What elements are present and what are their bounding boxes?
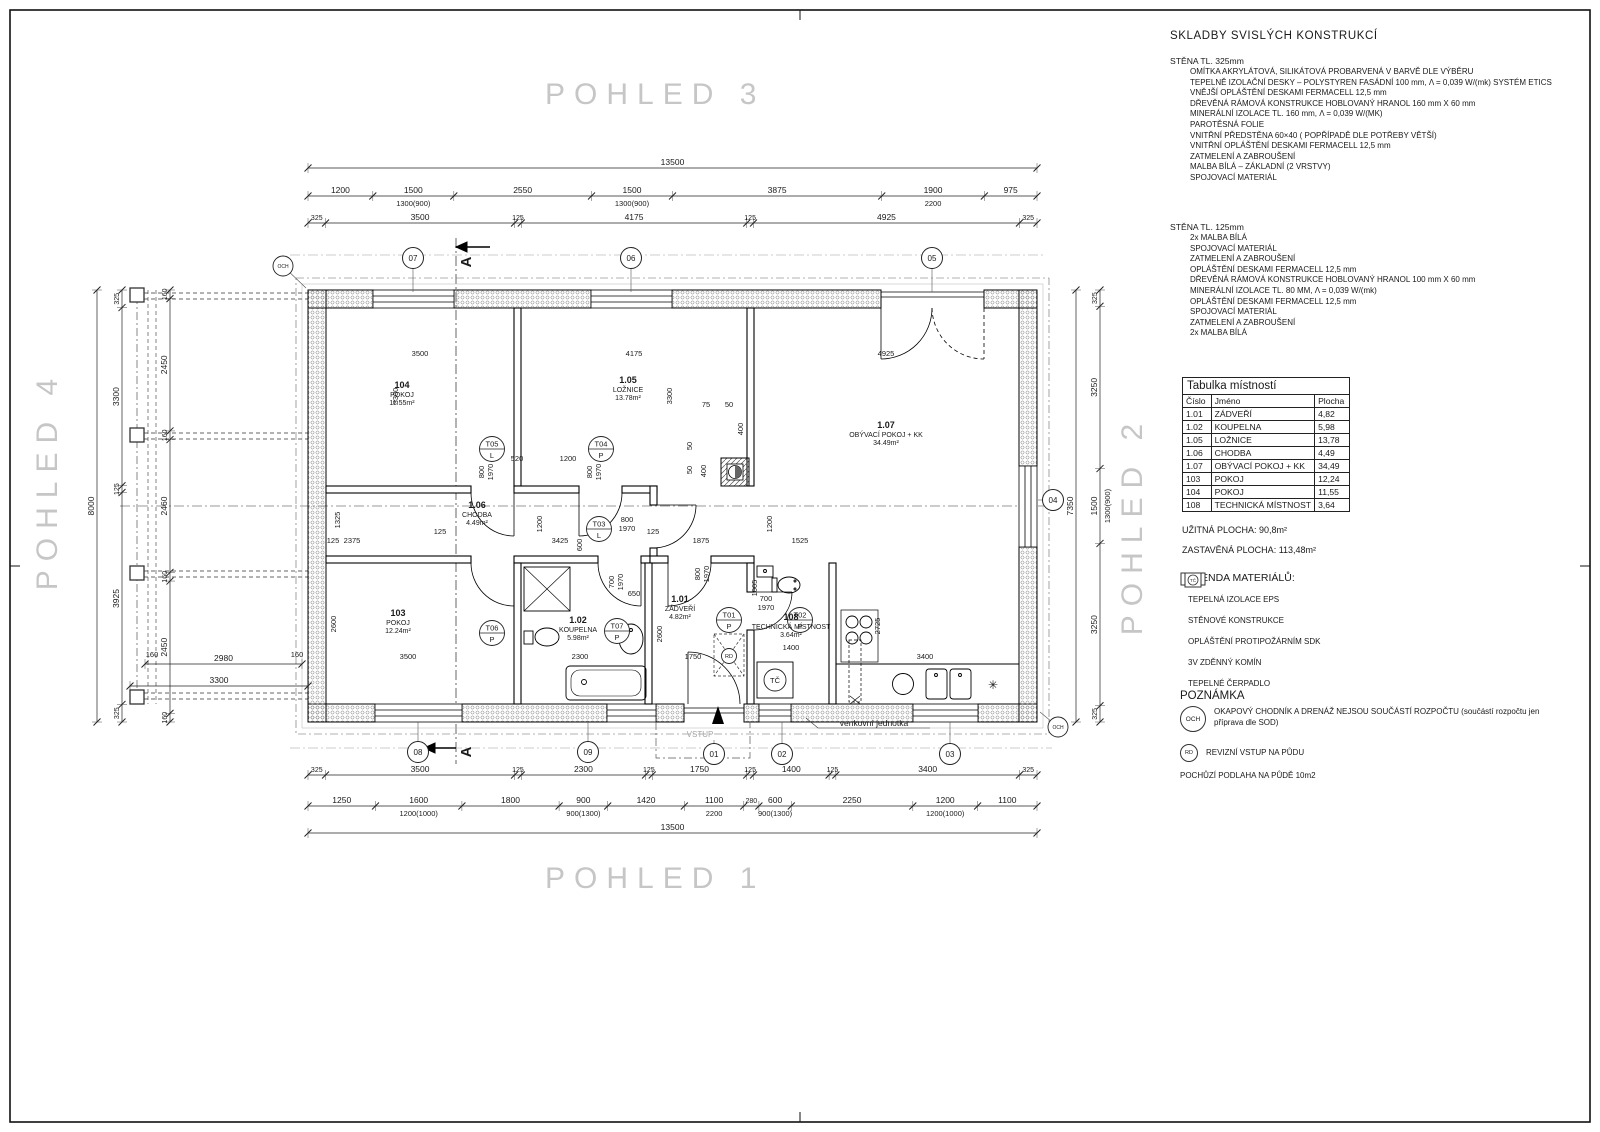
spec-line: OMÍTKA AKRYLÁTOVÁ, SILIKÁTOVÁ PROBARVENÁ… [1190, 67, 1552, 78]
dim-text: 1100 [705, 795, 724, 805]
dim-text: 2300 [572, 652, 589, 661]
room-table-title: Tabulka místností [1183, 378, 1350, 395]
spec-line: MINERÁLNÍ IZOLACE TL. 80 MM, Λ = 0,039 W… [1190, 286, 1475, 297]
dim-text: 1970 [619, 524, 636, 533]
dim-text: 1525 [792, 536, 809, 545]
burner [893, 674, 914, 695]
door-tag-side: P [598, 451, 603, 460]
dim-text: 125 [647, 527, 660, 536]
dim-text: 600 [575, 539, 584, 552]
room-table-body: 1.01ZÁDVEŘÍ4,821.02KOUPELNA5,981.05LOŽNI… [1183, 408, 1350, 512]
dim-text: 125 [512, 767, 524, 774]
dim-text: 7350 [1065, 496, 1075, 515]
view-title-pohled3: POHLED 3 [545, 78, 765, 112]
wall325-spec: STĚNA TL. 325mm OMÍTKA AKRYLÁTOVÁ, SILIK… [1170, 56, 1552, 184]
svg-text:TČ: TČ [1190, 577, 1197, 583]
dim-text: 1500 [1089, 496, 1099, 515]
dim-text: 1325 [333, 512, 342, 529]
dim-text: 50 [685, 466, 694, 474]
dim-text: 1970 [702, 566, 711, 583]
dim-text: 975 [1004, 185, 1018, 195]
room-table-header: Číslo Jméno Plocha [1183, 395, 1350, 408]
dim-text: 125 [643, 767, 655, 774]
dim-text: 400 [699, 465, 708, 478]
dim-text: 2375 [344, 536, 361, 545]
dim-text: 1400 [783, 643, 800, 652]
spec-line: DŘEVĚNÁ RÁMOVÁ KONSTRUKCE HOBLOVANÝ HRAN… [1190, 99, 1552, 110]
dim-text: 3500 [412, 349, 429, 358]
dim-text: 2980 [214, 653, 233, 663]
spec-line: SPOJOVACÍ MATERIÁL [1190, 173, 1552, 184]
toilet-tank [524, 631, 533, 644]
room-area: 12.24m² [385, 628, 411, 635]
note-title: POZNÁMKA [1180, 690, 1580, 702]
room-name: OBÝVACÍ POKOJ + KK [849, 430, 923, 439]
dim-text: 3400 [918, 764, 937, 774]
dim-text: 1200 [560, 454, 577, 463]
dim-text: 900(1300) [758, 809, 793, 818]
dim-text: 125 [512, 215, 524, 222]
dim-text: 1970 [758, 603, 775, 612]
room-number: 1.07 [877, 420, 895, 430]
room-table: Tabulka místností Číslo Jméno Plocha 1.0… [1182, 377, 1350, 512]
room-name: ZÁDVEŘÍ [665, 604, 695, 613]
dim-text: 3925 [111, 589, 121, 608]
window-marker-label: 05 [928, 254, 937, 263]
dim-text: 125 [114, 483, 121, 495]
dim-text: 3875 [768, 185, 787, 195]
dim-text: 325 [1092, 292, 1099, 304]
dim-text: 325 [1092, 708, 1099, 720]
wall325-heading: STĚNA TL. 325mm [1170, 56, 1552, 66]
window-marker-label: 09 [584, 748, 593, 757]
dim-text: 1970 [594, 464, 603, 481]
dim-text: 1200 [535, 516, 544, 533]
spec-line: MINERÁLNÍ IZOLACE TL. 160 mm, Λ = 0,039 … [1190, 109, 1552, 120]
legend-item-sdk: OPLÁŠTĚNÍ PROTIPOŽÁRNÍM SDK [1180, 631, 1320, 652]
dim-text: 325 [311, 215, 323, 222]
dim-text: 325 [1022, 767, 1034, 774]
dim-text: 1200 [331, 185, 350, 195]
room-number: 103 [390, 608, 405, 618]
door-tag-side: L [597, 531, 601, 540]
badge-label: RD [725, 654, 733, 660]
dim-text: 3425 [552, 536, 569, 545]
dim-text: 2600 [329, 616, 338, 633]
spec-line: OPLÁŠTĚNÍ DESKAMI FERMACELL 12,5 mm [1190, 265, 1475, 276]
door-tag-id: T05 [486, 440, 499, 449]
dim-text: 2200 [706, 809, 723, 818]
wall125-heading: STĚNA TL. 125mm [1170, 222, 1475, 232]
room-number: 1.06 [468, 500, 486, 510]
door-tag-id: T06 [486, 624, 499, 633]
dim-text: 1200 [765, 516, 774, 533]
dim-text: 1250 [332, 795, 351, 805]
dim-text: 1500 [623, 185, 642, 195]
legend-item-wall: STĚNOVÉ KONSTRUKCE [1180, 610, 1320, 631]
dim-text: 1970 [486, 464, 495, 481]
dim-text: 700 [607, 576, 616, 589]
dim-text: 50 [685, 442, 694, 450]
room-name: LOŽNICE [613, 385, 644, 394]
spec-line: ZATMELENÍ A ZABROUŠENÍ [1190, 318, 1475, 329]
dim-text: 1300(900) [615, 199, 650, 208]
spec-line: SPOJOVACÍ MATERIÁL [1190, 307, 1475, 318]
dim-text: 3300 [210, 675, 229, 685]
spec-line: OPLÁŠTĚNÍ DESKAMI FERMACELL 12,5 mm [1190, 297, 1475, 308]
dim-text: 800 [477, 466, 486, 479]
dim-text: 2450 [159, 637, 169, 656]
dim-text: 600 [768, 795, 782, 805]
dim-text: 2725 [873, 618, 882, 635]
window-marker-label: 08 [414, 748, 423, 757]
dim-text: 3500 [400, 652, 417, 661]
dim-text: 50 [725, 400, 733, 409]
dim-text: 1900 [924, 185, 943, 195]
dim-text: 800 [585, 466, 594, 479]
wall325-lines: OMÍTKA AKRYLÁTOVÁ, SILIKÁTOVÁ PROBARVENÁ… [1170, 67, 1552, 184]
plan-label: A [458, 256, 475, 267]
rd-note-text: REVIZNÍ VSTUP NA PŮDU [1206, 747, 1304, 758]
room-name: KOUPELNA [559, 627, 597, 634]
dim-text: 75 [702, 400, 710, 409]
dim-text: 125 [327, 536, 340, 545]
door-tag-id: T03 [593, 520, 606, 529]
badge-label: OCH [1052, 725, 1064, 731]
chimney [721, 458, 749, 486]
spec-line: 2x MALBA BÍLÁ [1190, 233, 1475, 244]
legend-label: STĚNOVÉ KONSTRUKCE [1188, 616, 1284, 625]
window-marker-label: 01 [710, 750, 719, 759]
toilet2 [778, 577, 800, 593]
dim-text: 125 [744, 767, 756, 774]
room-name: POKOJ [386, 620, 410, 627]
window-marker-label: 02 [778, 750, 787, 759]
utility-sink [757, 566, 773, 577]
table-row: 1.07OBÝVACÍ POKOJ + KK34,49 [1183, 460, 1350, 473]
dim-text: 125 [434, 527, 447, 536]
note-section: POZNÁMKA OCH OKAPOVÝ CHODNÍK A DRENÁŽ NE… [1180, 690, 1580, 781]
wall125-lines: 2x MALBA BÍLÁSPOJOVACÍ MATERIÁLZATMELENÍ… [1170, 233, 1475, 339]
dim-text: 2460 [159, 496, 169, 515]
spec-line: 2x MALBA BÍLÁ [1190, 328, 1475, 339]
wall125-spec: STĚNA TL. 125mm 2x MALBA BÍLÁSPOJOVACÍ M… [1170, 222, 1475, 339]
dim-text: 160 [291, 650, 304, 659]
dim-text: 160 [162, 571, 169, 583]
dim-text: 1005 [750, 580, 759, 597]
room-number: 108 [783, 612, 798, 622]
rd-badge: RD [1180, 744, 1198, 762]
room-name: CHODBA [462, 512, 492, 519]
dim-text: 325 [114, 707, 121, 719]
dim-text: 1300(900) [1103, 488, 1112, 523]
centerlines [120, 238, 1062, 764]
dim-text: 3500 [411, 212, 430, 222]
dim-text: 280 [745, 798, 757, 805]
door-tag-side: P [614, 633, 619, 642]
legend-label: TEPELNÉ ČERPADLO [1188, 679, 1270, 688]
entry-arrow [712, 706, 724, 724]
dim-text: 4175 [626, 349, 643, 358]
table-row: 104POKOJ11,55 [1183, 486, 1350, 499]
dim-text: 1600 [409, 795, 428, 805]
dim-text: 13500 [661, 157, 685, 167]
dim-text: 325 [311, 767, 323, 774]
legend-label: TEPELNÁ IZOLACE EPS [1188, 595, 1279, 604]
dim-text: 1300(900) [396, 199, 431, 208]
dim-text: 2200 [925, 199, 942, 208]
dim-text: 3300 [391, 388, 400, 405]
room-number: 1.01 [671, 594, 689, 604]
dim-text: 325 [1022, 215, 1034, 222]
dim-text: 900(1300) [566, 809, 601, 818]
table-row: 1.05LOŽNICE13,78 [1183, 434, 1350, 447]
room-number: 1.05 [619, 375, 637, 385]
window-marker-label: 07 [409, 254, 418, 263]
dim-text: 13500 [661, 822, 685, 832]
table-row: 1.02KOUPELNA5,98 [1183, 421, 1350, 434]
dim-text: 160 [162, 288, 169, 300]
door-tag-id: T07 [611, 622, 624, 631]
heat-pump-symbol-icon: TČ [1180, 572, 1206, 588]
legend-label: OPLÁŠTĚNÍ PROTIPOŽÁRNÍM SDK [1188, 637, 1320, 646]
dim-text: 1100 [998, 795, 1017, 805]
section-marks [424, 242, 490, 753]
badge-label: OCH [277, 264, 289, 270]
badge-label: TČ [770, 676, 781, 685]
dim-text: 1750 [685, 652, 702, 661]
view-title-pohled2: POHLED 2 [1116, 405, 1150, 645]
dim-text: 800 [693, 568, 702, 581]
legend-item-chimney: 3V ZDĚNNÝ KOMÍN [1180, 652, 1320, 673]
dim-text: 1200 [936, 795, 955, 805]
legend-item-eps: TEPELNÁ IZOLACE EPS [1180, 589, 1320, 610]
dim-text: 1200(1000) [400, 809, 439, 818]
spec-line: VNĚJŠÍ OPLÁŠTĚNÍ DESKAMI FERMACELL 12,5 … [1190, 88, 1552, 99]
dim-text: 2550 [513, 185, 532, 195]
dim-text: 3500 [411, 764, 430, 774]
table-row: 108TECHNICKÁ MÍSTNOST3,64 [1183, 499, 1350, 512]
usable-area: UŽITNÁ PLOCHA: 90,8m² [1182, 520, 1287, 540]
view-title-pohled1: POHLED 1 [545, 862, 765, 896]
bathtub [566, 666, 646, 700]
dim-text: 2450 [159, 355, 169, 374]
door-tag-side: P [726, 622, 731, 631]
dim-text: 1800 [501, 795, 520, 805]
spec-line: ZATMELENÍ A ZABROUŠENÍ [1190, 152, 1552, 163]
dim-text: 1420 [637, 795, 656, 805]
room-name: TECHNICKÁ MÍSTNOST [752, 622, 831, 631]
spec-line: SPOJOVACÍ MATERIÁL [1190, 244, 1475, 255]
dim-text: 3250 [1089, 378, 1099, 397]
dim-text: 325 [114, 293, 121, 305]
dim-text: 4175 [625, 212, 644, 222]
dim-text: 3400 [917, 652, 934, 661]
dim-text: 8000 [86, 496, 96, 515]
legend: LEGENDA MATERIÁLŮ: TEPELNÁ IZOLACE EPS S… [1180, 572, 1320, 694]
toilet2-tank [772, 578, 777, 592]
duct [849, 640, 861, 702]
dim-text: 3300 [665, 388, 674, 405]
plan-label: ✳ [988, 678, 998, 692]
spec-line: MALBA BÍLÁ – ZÁKLADNÍ (2 VRSTVY) [1190, 162, 1552, 173]
table-row: 1.01ZÁDVEŘÍ4,82 [1183, 408, 1350, 421]
table-row: 103POKOJ12,24 [1183, 473, 1350, 486]
dim-text: 2600 [655, 626, 664, 643]
attic-floor-note: POCHŮZÍ PODLAHA NA PŮDĚ 10m2 [1180, 770, 1580, 781]
table-row: 1.06CHODBA4,49 [1183, 447, 1350, 460]
spec-line: VNITŘNÍ OPLÁŠTĚNÍ DESKAMI FERMACELL 12,5… [1190, 141, 1552, 152]
door-tag-side: L [490, 451, 494, 460]
spec-line: DŘEVĚNÁ RÁMOVÁ KONSTRUKCE HOBLOVANÝ HRAN… [1190, 275, 1475, 286]
plan-label: venkovní jednotka [840, 718, 909, 728]
room-number: 1.02 [569, 615, 587, 625]
drawing-sheet: 13500120015001300(900)255015001300(900)3… [0, 0, 1600, 1132]
skladby-title: SKLADBY SVISLÝCH KONSTRUKCÍ [1170, 30, 1378, 42]
view-title-pohled4: POHLED 4 [31, 360, 65, 600]
dim-text: 900 [576, 795, 590, 805]
window-marker-label: 06 [627, 254, 636, 263]
dim-text: 1970 [616, 574, 625, 591]
dim-text: 2250 [843, 795, 862, 805]
dim-text: 650 [628, 589, 641, 598]
door-tag-id: T04 [595, 440, 608, 449]
dim-text: 1200(1000) [926, 809, 965, 818]
dim-text: 4925 [877, 212, 896, 222]
dim-text: 700 [760, 594, 773, 603]
dim-text: 125 [744, 215, 756, 222]
dim-text: 4925 [878, 349, 895, 358]
spec-line: PAROTĚSNÁ FOLIE [1190, 120, 1552, 131]
dim-text: 160 [162, 429, 169, 441]
dim-text: 520 [511, 454, 524, 463]
dim-text: 125 [827, 767, 839, 774]
dim-text: 1400 [782, 764, 801, 774]
plan-label: VSTUP [687, 730, 714, 739]
room-area: 3.64m² [780, 632, 802, 639]
room-area: 4.82m² [669, 614, 691, 621]
plan-label: A [458, 746, 475, 757]
room-area: 13.78m² [615, 395, 641, 402]
och-badge: OCH [1180, 706, 1206, 732]
porch [130, 288, 308, 704]
dim-text: 1875 [693, 536, 710, 545]
spec-line: ZATMELENÍ A ZABROUŠENÍ [1190, 254, 1475, 265]
builtup-area: ZASTAVĚNÁ PLOCHA: 113,48m² [1182, 540, 1316, 560]
dim-text: 3300 [111, 387, 121, 406]
dim-text: 1750 [690, 764, 709, 774]
dim-text: 3250 [1089, 615, 1099, 634]
window-marker-label: 04 [1049, 496, 1058, 505]
och-note-text: OKAPOVÝ CHODNÍK A DRENÁŽ NEJSOU SOUČÁSTÍ… [1214, 706, 1544, 728]
dim-text: 800 [621, 515, 634, 524]
spec-line: TEPELNĚ IZOLAČNÍ DESKY – POLYSTYREN FASÁ… [1190, 78, 1552, 89]
dim-text: 400 [736, 423, 745, 436]
dim-text: 1500 [404, 185, 423, 195]
room-area: 5.98m² [567, 635, 589, 642]
legend-label: 3V ZDĚNNÝ KOMÍN [1188, 658, 1261, 667]
dim-text: 160 [146, 650, 159, 659]
door-tag-id: T01 [723, 611, 736, 620]
spec-line: VNITŘNÍ PŘEDSTĚNA 60×40 ( POPŘÍPADĚ DLE … [1190, 131, 1552, 142]
room-area: 34.49m² [873, 440, 899, 447]
dim-text: 2300 [574, 764, 593, 774]
door-tag-side: P [489, 635, 494, 644]
room-area: 4.49m² [466, 520, 488, 527]
annotation-overlay: 13500120015001300(900)255015001300(900)3… [86, 157, 1112, 838]
toilet [535, 628, 559, 646]
window-marker-label: 03 [946, 750, 955, 759]
dim-text: 160 [162, 712, 169, 724]
